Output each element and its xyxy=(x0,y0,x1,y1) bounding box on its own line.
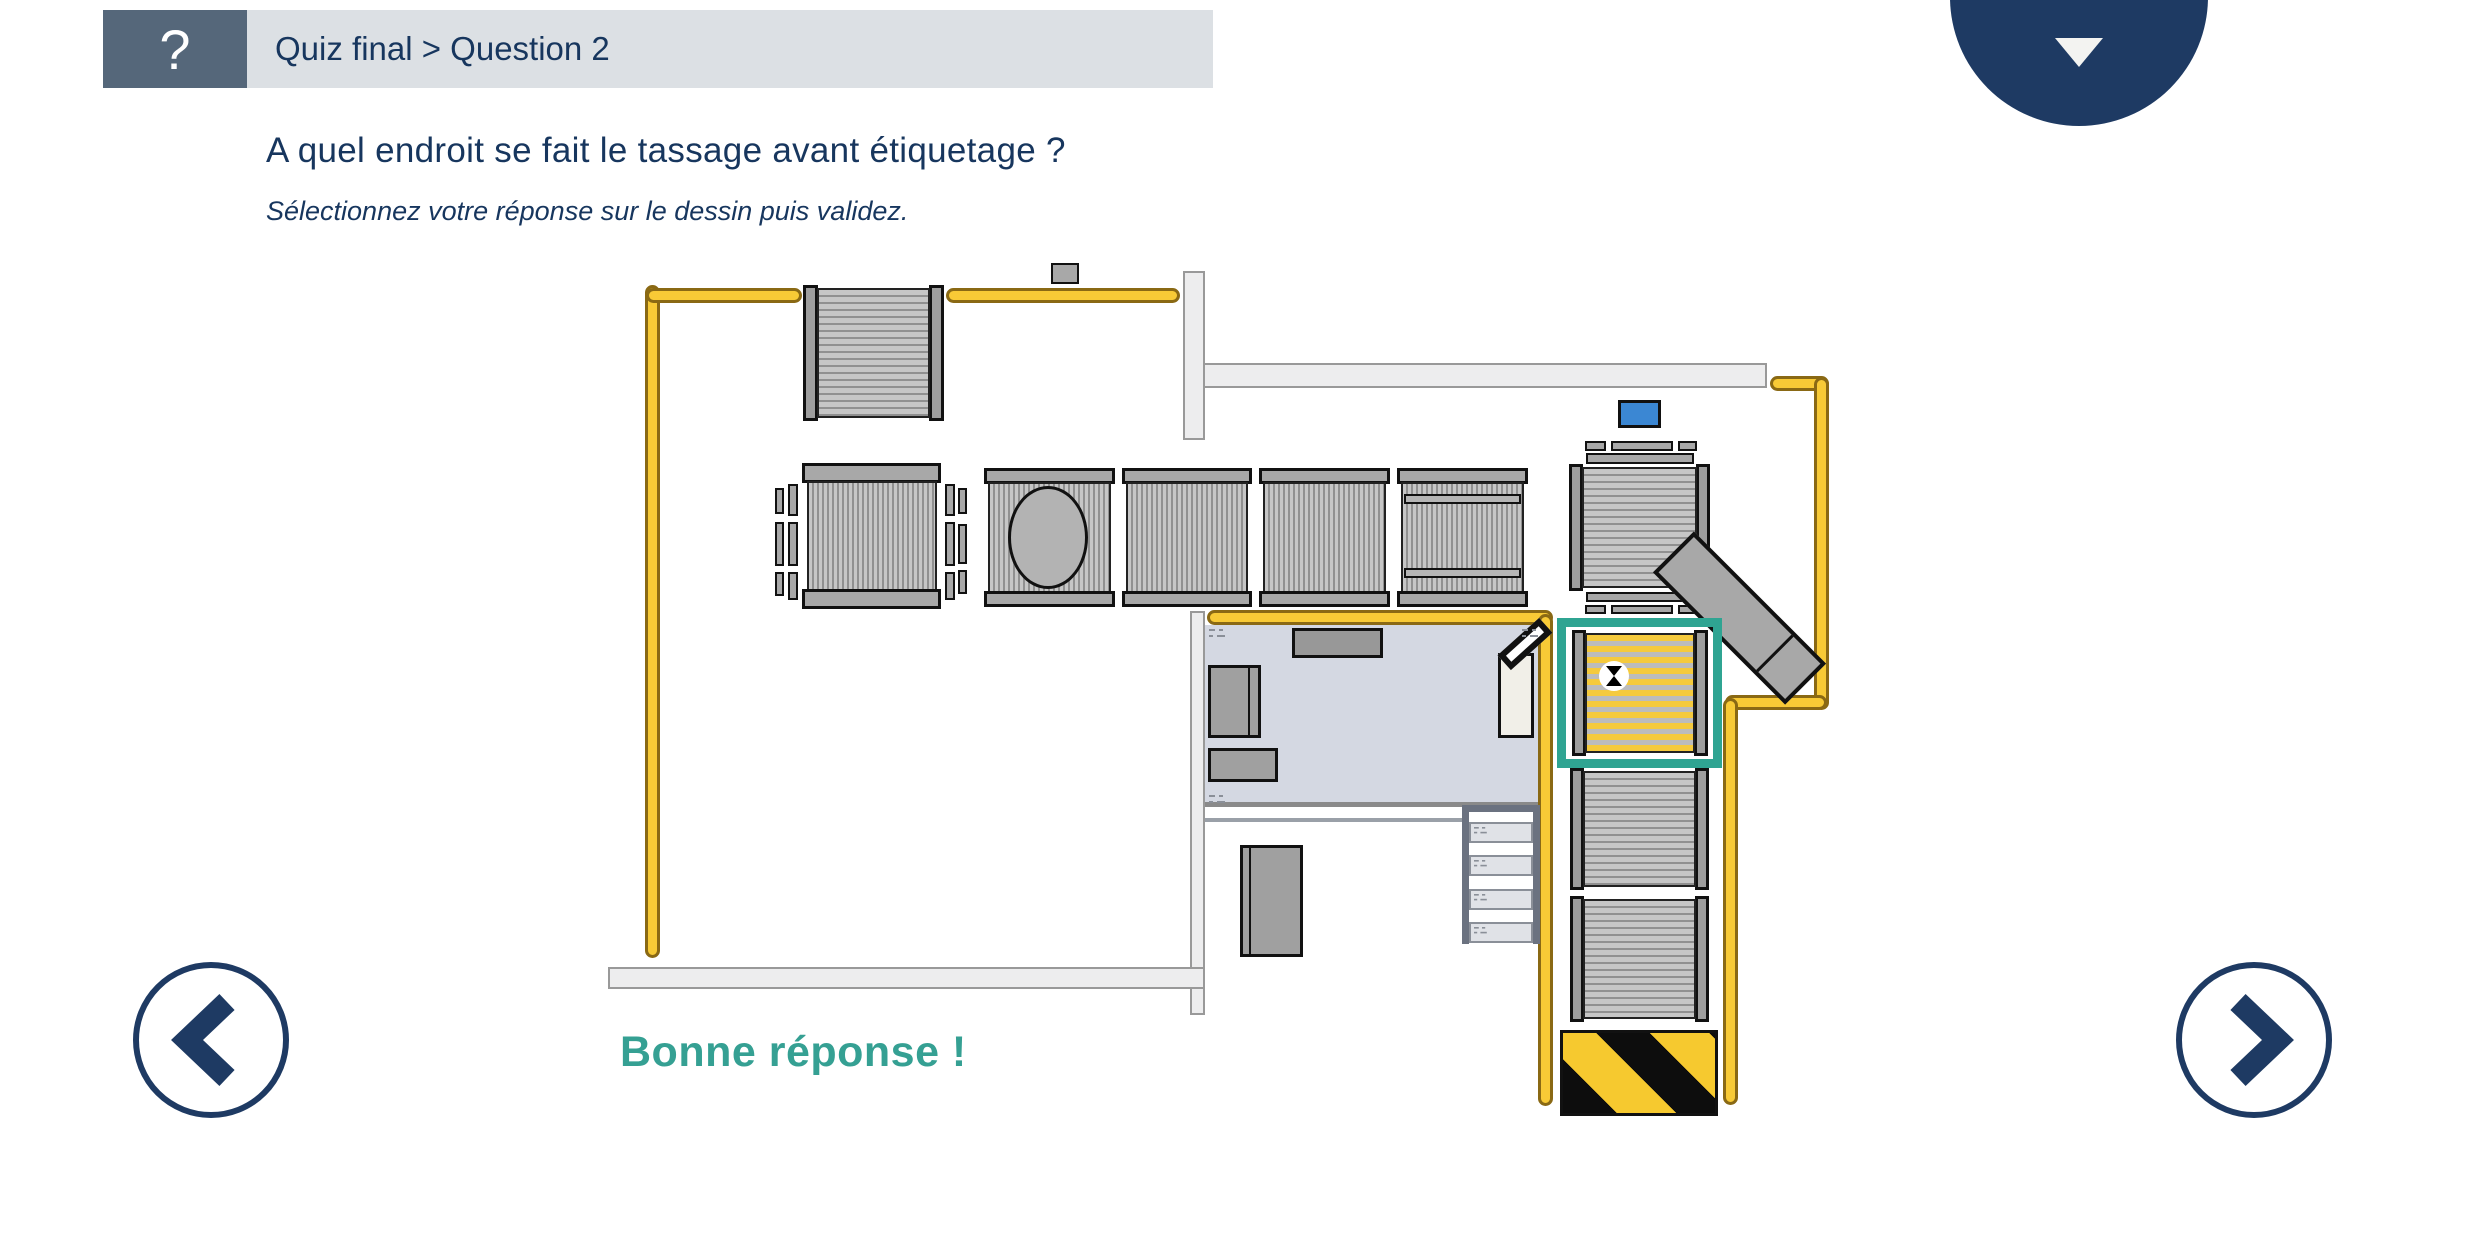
prev-button[interactable] xyxy=(133,962,289,1118)
stair-rung-top xyxy=(1462,805,1540,812)
line1-guide xyxy=(958,570,967,594)
infeed-rail-right xyxy=(929,285,944,421)
label-specks xyxy=(1474,894,1490,902)
label-specks xyxy=(1474,927,1490,935)
room-machine-panel xyxy=(1248,668,1250,735)
next-button[interactable] xyxy=(2176,962,2332,1118)
vtop-rail-left xyxy=(1569,464,1583,591)
feedback-message: Bonne réponse ! xyxy=(620,1028,967,1077)
line1-guide xyxy=(775,488,784,514)
hazard-strip xyxy=(1560,1030,1718,1116)
pallet-table-edge xyxy=(1249,848,1251,954)
line1-guide xyxy=(788,484,798,516)
out1-rail-right xyxy=(1695,768,1709,890)
wall-room-left xyxy=(1190,611,1205,1015)
feed-bar xyxy=(1678,441,1697,451)
line3-conveyor[interactable] xyxy=(1126,482,1248,593)
feed-bar xyxy=(1611,605,1673,614)
line4-cap-bottom xyxy=(1259,591,1390,607)
walkway-line xyxy=(1205,818,1463,822)
guardrail-room-top xyxy=(1207,610,1553,625)
line5-cap-bottom xyxy=(1397,591,1528,607)
chevron-left-icon xyxy=(139,968,283,1112)
label-specks xyxy=(1209,629,1229,639)
out1-rail-left xyxy=(1570,768,1584,890)
stair-stringer-right xyxy=(1533,805,1540,944)
label-specks xyxy=(1522,629,1542,639)
label-specks xyxy=(1209,795,1229,805)
wall-horizontal xyxy=(1203,363,1767,388)
guardrail-right-corner xyxy=(1725,695,1827,710)
line1-guide xyxy=(945,572,955,600)
room-cabinet xyxy=(1498,653,1534,738)
chevron-right-icon xyxy=(2182,968,2326,1112)
feed-bar xyxy=(1585,441,1606,451)
line1-cap-top xyxy=(802,463,941,483)
line1-guide xyxy=(958,524,967,564)
line2-cap-bottom xyxy=(984,591,1115,607)
line1-guide xyxy=(958,488,967,514)
line1-guide xyxy=(775,572,784,596)
printer-box xyxy=(1618,400,1661,428)
factory-floorplan xyxy=(0,0,2486,1254)
stairs xyxy=(1462,805,1541,945)
room-table-left xyxy=(1208,748,1278,782)
outfeed-conveyor-1[interactable] xyxy=(1583,771,1696,887)
line1-cap-bottom xyxy=(802,589,941,609)
out2-rail-right xyxy=(1695,896,1709,1022)
guardrail-outfeed-right xyxy=(1723,698,1738,1105)
guardrail-left-vertical xyxy=(645,285,660,958)
label-specks xyxy=(1474,827,1490,835)
label-specks xyxy=(1474,860,1490,868)
guardrail-top-1 xyxy=(646,288,802,303)
outfeed-conveyor-2[interactable] xyxy=(1583,899,1696,1019)
quiz-screen: ? Quiz final > Question 2 A quel endroit… xyxy=(0,0,2486,1254)
room-table-top xyxy=(1292,628,1383,658)
labeller-slot xyxy=(1404,568,1521,578)
line1-guide xyxy=(788,572,798,600)
feed-bar xyxy=(1611,441,1673,451)
answer-zone-highlight[interactable] xyxy=(1557,618,1722,768)
hourglass-top xyxy=(1606,666,1622,676)
line1-guide xyxy=(945,484,955,516)
out2-rail-left xyxy=(1570,896,1584,1022)
sensor-box xyxy=(1051,263,1079,284)
stair-stringer-left xyxy=(1462,805,1469,944)
infeed-conveyor[interactable] xyxy=(817,288,930,418)
labeller-slot xyxy=(1404,494,1521,504)
line1-guide xyxy=(775,522,784,566)
room-machine-left xyxy=(1208,665,1261,738)
wall-bottom xyxy=(608,967,1205,989)
infeed-rail-left xyxy=(803,285,818,421)
line3-cap-bottom xyxy=(1122,591,1252,607)
feed-bar-wide xyxy=(1586,453,1694,464)
line1-guide xyxy=(945,522,955,566)
guardrail-top-2 xyxy=(946,288,1180,303)
line4-conveyor[interactable] xyxy=(1263,482,1386,593)
line1-guide xyxy=(788,522,798,566)
turntable[interactable] xyxy=(1008,486,1088,589)
pallet-table xyxy=(1240,845,1303,957)
feed-bar xyxy=(1585,605,1606,614)
hourglass-bottom xyxy=(1606,676,1622,686)
busy-cursor-icon xyxy=(1599,661,1629,691)
tilted-conveyor-joint xyxy=(1756,635,1793,672)
line1-conveyor[interactable] xyxy=(807,481,937,591)
wall-t-vertical xyxy=(1183,271,1205,440)
